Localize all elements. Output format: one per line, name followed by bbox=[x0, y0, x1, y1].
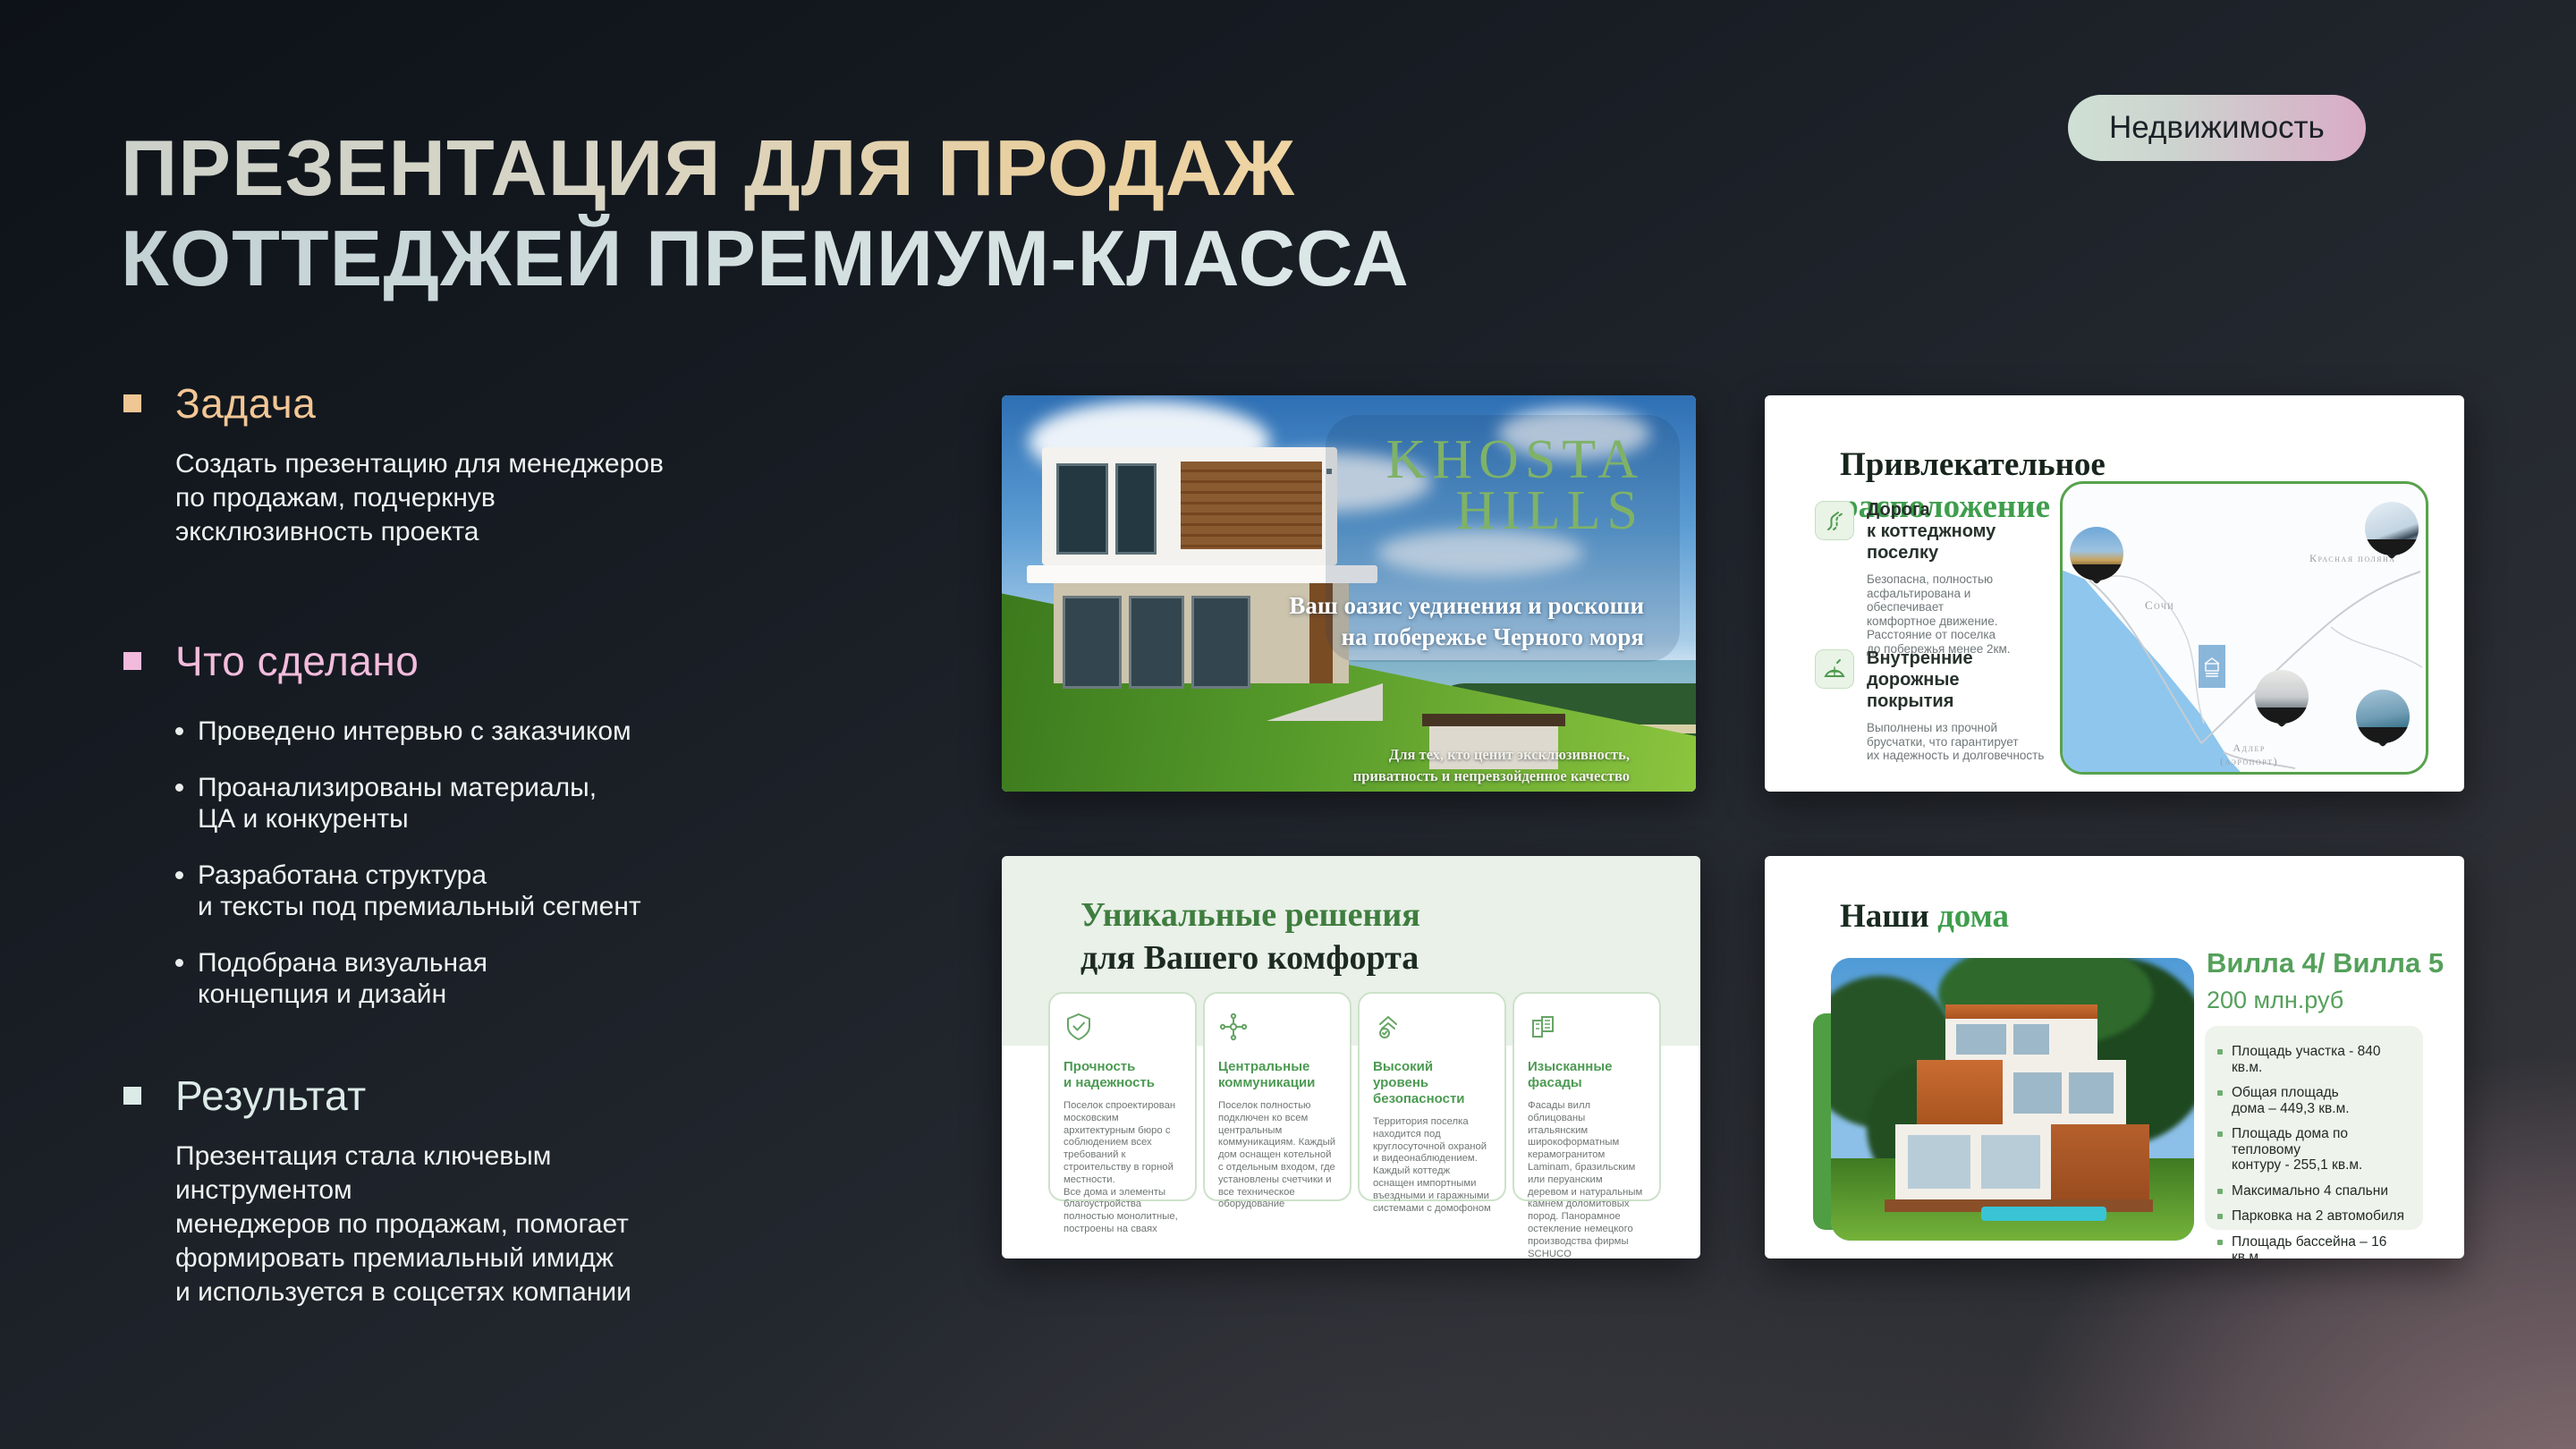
map-pin-coast-photo bbox=[2356, 690, 2410, 756]
feature-paving-body: Выполнены из прочной брусчатки, что гара… bbox=[1867, 721, 2047, 763]
solution-card-security: Высокий уровень безопасности Территория … bbox=[1358, 992, 1506, 1201]
card-body: Поселок полностью подключен ко всем цент… bbox=[1218, 1100, 1336, 1211]
shield-check-icon bbox=[1063, 1012, 1094, 1042]
window bbox=[1115, 463, 1157, 555]
glass-door bbox=[1129, 596, 1184, 689]
paving-icon bbox=[1815, 649, 1854, 689]
villa-specs-panel: Площадь участка - 840 кв.м. Общая площад… bbox=[2205, 1026, 2423, 1230]
map-label-adler-airport: Адлер (аэропорт) bbox=[2220, 741, 2278, 768]
window bbox=[2013, 1072, 2062, 1114]
glass-door bbox=[1981, 1135, 2040, 1189]
result-body: Презентация стала ключевым инструментом … bbox=[175, 1140, 732, 1309]
utilities-hub-icon bbox=[1218, 1012, 1249, 1042]
done-square-marker bbox=[123, 652, 141, 670]
bullet-square bbox=[2217, 1090, 2223, 1096]
map-pin-city-photo bbox=[2070, 527, 2123, 593]
winding-road-icon bbox=[1815, 501, 1854, 540]
bullet-dot bbox=[175, 959, 183, 967]
spec-text: Площадь участка - 840 кв.м. bbox=[2232, 1044, 2411, 1075]
spec-text: Площадь дома по тепловому контуру - 255,… bbox=[2232, 1126, 2411, 1174]
spec-text: Общая площадь дома – 449,3 кв.м. bbox=[2232, 1085, 2350, 1116]
feature-road-texts: Дорога к коттеджному поселку Безопасна, … bbox=[1867, 499, 2047, 656]
window bbox=[1056, 463, 1108, 555]
feature-paving-texts: Внутренние дорожные покрытия Выполнены и… bbox=[1867, 648, 2047, 763]
spec-text: Максимально 4 спальни bbox=[2232, 1183, 2388, 1199]
window bbox=[2013, 1024, 2049, 1055]
section-task: Задача Создать презентацию для менеджеро… bbox=[123, 379, 732, 549]
bullet-dot bbox=[175, 871, 183, 879]
task-body: Создать презентацию для менеджеров по пр… bbox=[175, 447, 732, 549]
window bbox=[2069, 1072, 2114, 1114]
spec-row: Парковка на 2 автомобиля bbox=[2217, 1208, 2411, 1224]
neighbor-cottage-roof bbox=[1422, 714, 1565, 726]
spec-row: Общая площадь дома – 449,3 кв.м. bbox=[2217, 1085, 2411, 1116]
feature-paving: Внутренние дорожные покрытия Выполнены и… bbox=[1815, 648, 2047, 763]
card-body: Фасады вилл облицованы итальянским широк… bbox=[1528, 1100, 1646, 1258]
khosta-hills-map-logo bbox=[2199, 645, 2225, 688]
bullet-dot bbox=[175, 727, 183, 735]
wood-panel bbox=[1917, 1060, 2003, 1124]
list-item: Подобрана визуальная концепция и дизайн bbox=[175, 947, 732, 1010]
homes-title-black: Наши bbox=[1840, 898, 1929, 935]
bullet-square bbox=[2217, 1049, 2223, 1055]
feature-paving-title: Внутренние дорожные покрытия bbox=[1867, 648, 2047, 712]
page-title-line1: ПРЕЗЕНТАЦИЯ ДЛЯ ПРОДАЖ bbox=[121, 123, 1410, 213]
cottage-upper-floor bbox=[1042, 447, 1337, 565]
security-icon bbox=[1373, 1012, 1403, 1042]
spec-text: Площадь бассейна – 16 кв.м. bbox=[2232, 1234, 2411, 1259]
list-item: Проанализированы материалы, ЦА и конкуре… bbox=[175, 772, 732, 835]
section-done: Что сделано Проведено интервью с заказчи… bbox=[123, 637, 732, 1035]
homes-title: Наши дома bbox=[1840, 897, 2009, 936]
villa-ground-floor bbox=[1895, 1124, 2149, 1199]
result-heading: Результат bbox=[175, 1072, 367, 1120]
map-label-sochi: Сочи bbox=[2145, 598, 2174, 613]
spec-row: Площадь дома по тепловому контуру - 255,… bbox=[2217, 1126, 2411, 1174]
done-heading: Что сделано bbox=[175, 637, 419, 685]
task-heading: Задача bbox=[175, 379, 316, 428]
page-title: ПРЕЗЕНТАЦИЯ ДЛЯ ПРОДАЖ КОТТЕДЖЕЙ ПРЕМИУМ… bbox=[121, 123, 1410, 303]
bullet-dot bbox=[175, 784, 183, 792]
map-pin-ski-resort-photo bbox=[2365, 502, 2419, 568]
villa-price: 200 млн.руб bbox=[2207, 987, 2343, 1014]
cover-note: Для тех, кто ценит эксклюзивность, прива… bbox=[1353, 744, 1630, 787]
spec-row: Максимально 4 спальни bbox=[2217, 1183, 2411, 1199]
solutions-title-black: для Вашего комфорта bbox=[1080, 939, 1419, 977]
task-square-marker bbox=[123, 394, 141, 412]
card-title: Прочность и надежность bbox=[1063, 1059, 1182, 1091]
card-body: Территория поселка находится под круглос… bbox=[1373, 1116, 1491, 1215]
glass-door bbox=[1063, 596, 1122, 689]
list-item: Разработана структура и тексты под преми… bbox=[175, 860, 732, 922]
cover-brand-title: KHOSTA HILLS bbox=[1386, 435, 1645, 537]
map-pin-airport-photo bbox=[2255, 670, 2309, 736]
bullet-square bbox=[2217, 1189, 2223, 1194]
spec-text: Парковка на 2 автомобиля bbox=[2232, 1208, 2404, 1224]
portfolio-case-slide: ПРЕЗЕНТАЦИЯ ДЛЯ ПРОДАЖ КОТТЕДЖЕЙ ПРЕМИУМ… bbox=[0, 0, 2576, 1449]
glass-door bbox=[1908, 1135, 1970, 1189]
bullet-square bbox=[2217, 1131, 2223, 1137]
page-title-line2: КОТТЕДЖЕЙ ПРЕМИУМ-КЛАССА bbox=[121, 213, 1410, 303]
solution-card-utilities: Центральные коммуникации Поселок полност… bbox=[1203, 992, 1352, 1201]
wood-band bbox=[1945, 1004, 2097, 1019]
villa-top-floor bbox=[1945, 1004, 2097, 1060]
card-title: Изысканные фасады bbox=[1528, 1059, 1646, 1091]
spec-row: Площадь участка - 840 кв.м. bbox=[2217, 1044, 2411, 1075]
cover-tagline: Ваш оазис уединения и роскоши на побереж… bbox=[1289, 590, 1644, 653]
slide-thumbnail-location: Привлекательное расположение Дорога к ко… bbox=[1765, 395, 2464, 792]
feature-road-title: Дорога к коттеджному поселку bbox=[1867, 499, 2047, 563]
task-header: Задача bbox=[123, 379, 732, 428]
homes-title-green: дома bbox=[1937, 898, 2009, 935]
category-badge: Недвижимость bbox=[2068, 95, 2366, 161]
location-title-black: Привлекательное bbox=[1840, 446, 2106, 483]
facade-icon bbox=[1528, 1012, 1558, 1042]
done-list: Проведено интервью с заказчиком Проанали… bbox=[175, 716, 732, 1010]
result-square-marker bbox=[123, 1087, 141, 1105]
location-map: Сочи Красная поляна Адлер (аэропорт) bbox=[2060, 481, 2428, 775]
done-item-text: Проведено интервью с заказчиком bbox=[198, 716, 631, 747]
feature-road-body: Безопасна, полностью асфальтирована и об… bbox=[1867, 572, 2047, 656]
pool bbox=[1981, 1207, 2106, 1221]
bullet-square bbox=[2217, 1240, 2223, 1245]
slide-thumbnail-cover: KHOSTA HILLS Ваш оазис уединения и роско… bbox=[1002, 395, 1696, 792]
done-item-text: Разработана структура и тексты под преми… bbox=[198, 860, 641, 922]
solutions-title: Уникальные решения для Вашего комфорта bbox=[1080, 894, 1420, 979]
solutions-title-green: Уникальные решения bbox=[1080, 896, 1420, 934]
slide-thumbnail-solutions: Уникальные решения для Вашего комфорта П… bbox=[1002, 856, 1700, 1258]
done-item-text: Проанализированы материалы, ЦА и конкуре… bbox=[198, 772, 597, 835]
villa-photo bbox=[1831, 958, 2194, 1241]
solution-card-facades: Изысканные фасады Фасады вилл облицованы… bbox=[1513, 992, 1661, 1201]
villa-middle-floor bbox=[1917, 1060, 2126, 1124]
done-header: Что сделано bbox=[123, 637, 732, 685]
card-title: Центральные коммуникации bbox=[1218, 1059, 1336, 1091]
card-title: Высокий уровень безопасности bbox=[1373, 1059, 1491, 1107]
villa-name: Вилла 4/ Вилла 5 bbox=[2207, 947, 2444, 979]
slide-thumbnail-homes: Наши дома bbox=[1765, 856, 2464, 1258]
section-result: Результат Презентация стала ключевым инс… bbox=[123, 1072, 732, 1309]
card-body: Поселок спроектирован московским архитек… bbox=[1063, 1100, 1182, 1236]
list-item: Проведено интервью с заказчиком bbox=[175, 716, 732, 747]
spec-row: Площадь бассейна – 16 кв.м. bbox=[2217, 1234, 2411, 1259]
wood-panel bbox=[2051, 1124, 2149, 1199]
result-header: Результат bbox=[123, 1072, 732, 1120]
window bbox=[1956, 1024, 2006, 1055]
bullet-square bbox=[2217, 1214, 2223, 1219]
solution-card-durability: Прочность и надежность Поселок спроектир… bbox=[1048, 992, 1197, 1201]
done-item-text: Подобрана визуальная концепция и дизайн bbox=[198, 947, 487, 1010]
wood-facade-panel bbox=[1181, 462, 1322, 549]
feature-road: Дорога к коттеджному поселку Безопасна, … bbox=[1815, 499, 2047, 656]
glass-door bbox=[1191, 596, 1250, 689]
